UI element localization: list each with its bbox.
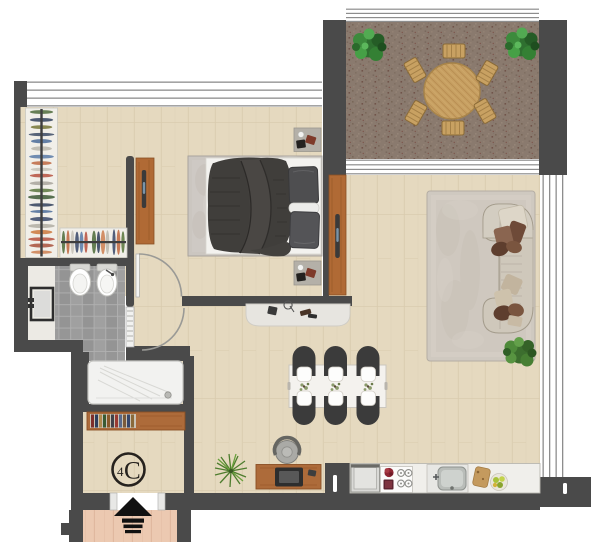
svg-text:C: C	[124, 458, 141, 485]
svg-text:4: 4	[117, 464, 124, 479]
